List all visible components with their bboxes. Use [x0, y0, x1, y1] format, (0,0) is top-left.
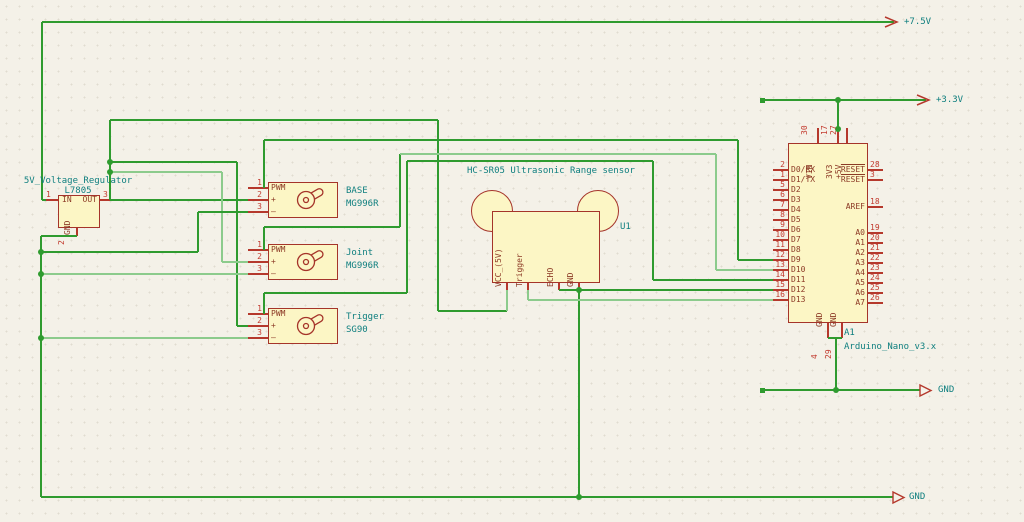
pin-label: –: [271, 207, 276, 216]
wire-segment[interactable]: [716, 269, 773, 271]
pin-number: 6: [770, 190, 785, 199]
junction-dot[interactable]: [38, 249, 44, 255]
pin-number: 30: [800, 125, 809, 135]
pin-number: 24: [870, 273, 880, 282]
pin-label: D3: [791, 195, 801, 204]
pin-label: A6: [815, 288, 865, 297]
wire-segment[interactable]: [237, 325, 248, 327]
pin-stub[interactable]: [248, 211, 268, 213]
pin-stub[interactable]: [248, 337, 268, 339]
pin-stub[interactable]: [868, 179, 883, 181]
pin-number: 17: [820, 125, 829, 135]
pin-number: 19: [870, 223, 880, 232]
wire-segment[interactable]: [407, 160, 653, 162]
wire-segment[interactable]: [737, 140, 739, 260]
wire-segment[interactable]: [715, 154, 717, 270]
arduino-ref[interactable]: A1: [844, 328, 855, 338]
pin-label: D7: [791, 235, 801, 244]
pin-stub[interactable]: [527, 283, 529, 290]
junction-dot[interactable]: [107, 169, 113, 175]
wire-segment[interactable]: [528, 299, 773, 301]
wire-segment[interactable]: [236, 162, 238, 326]
pin-label: D4: [791, 205, 801, 214]
pin-number: 21: [870, 243, 880, 252]
pin-label: PWM: [271, 309, 285, 318]
pin-label: A3: [815, 258, 865, 267]
wire-segment[interactable]: [835, 338, 837, 390]
pin-number: 12: [770, 250, 785, 259]
pin-label: PWM: [271, 245, 285, 254]
wire-segment[interactable]: [41, 337, 248, 339]
pin-label: D8: [791, 245, 801, 254]
pin-number: 1: [250, 178, 262, 187]
wire-segment[interactable]: [264, 226, 400, 228]
pin-label: GND: [566, 273, 575, 287]
pin-number: 3: [250, 202, 262, 211]
pin-number: 28: [870, 160, 880, 169]
pin-number: 2: [250, 252, 262, 261]
pin-number: 3: [250, 328, 262, 337]
regulator-pin-out-label: OUT: [75, 195, 97, 204]
junction-dot[interactable]: [576, 287, 582, 293]
wire-segment[interactable]: [578, 290, 580, 497]
pin-label: D11: [791, 275, 805, 284]
pin-number: 20: [870, 233, 880, 242]
regulator-pin-in-number: 1: [46, 190, 51, 199]
wire-segment[interactable]: [437, 120, 439, 311]
wire-segment[interactable]: [41, 235, 77, 237]
pin-number: 15: [770, 280, 785, 289]
junction-dot[interactable]: [833, 387, 839, 393]
pin-number: 10: [770, 230, 785, 239]
power-arrow-3v3-icon[interactable]: [916, 94, 932, 106]
pin-stub[interactable]: [248, 325, 268, 327]
wire-segment[interactable]: [41, 251, 198, 253]
pin-label: 3V3: [825, 165, 834, 179]
pin-number: 11: [770, 240, 785, 249]
wire-segment[interactable]: [110, 171, 222, 173]
pin-number: 1: [250, 304, 262, 313]
pin-stub[interactable]: [248, 273, 268, 275]
pin-number: 8: [770, 210, 785, 219]
sensor-title[interactable]: HC-SR05 Ultrasonic Range sensor: [467, 166, 635, 176]
pin-number: 13: [770, 260, 785, 269]
pin-number: 1: [770, 170, 785, 179]
regulator-title[interactable]: 5V_Voltage_Regulator: [18, 176, 138, 186]
wire-segment[interactable]: [263, 293, 265, 314]
wire-segment[interactable]: [110, 199, 248, 201]
wire-segment[interactable]: [42, 21, 894, 23]
pin-label: Trigger: [515, 253, 524, 287]
pin-label: ECHO: [546, 268, 555, 287]
pin-stub[interactable]: [841, 323, 843, 338]
pin-number: 2: [250, 316, 262, 325]
power-label-gnd-right[interactable]: GND: [938, 385, 954, 395]
wire-end-square: [760, 388, 765, 393]
wire-segment[interactable]: [400, 153, 716, 155]
pin-label: D6: [791, 225, 801, 234]
pin-label: A0: [815, 228, 865, 237]
pin-stub[interactable]: [248, 313, 268, 315]
pin-number: 2: [250, 190, 262, 199]
pin-label: A5: [815, 278, 865, 287]
pin-label: GND: [829, 313, 838, 327]
servo-base-model[interactable]: MG996R: [346, 199, 379, 209]
pin-label: –: [271, 269, 276, 278]
pin-number: 9: [770, 220, 785, 229]
sensor-ref[interactable]: U1: [620, 222, 631, 232]
pin-label: D12: [791, 285, 805, 294]
wire-segment[interactable]: [762, 389, 920, 391]
wire-segment[interactable]: [263, 227, 265, 250]
pin-number: 16: [770, 290, 785, 299]
servo-trigger-model[interactable]: SG90: [346, 325, 368, 335]
pin-label: GND: [815, 313, 824, 327]
pin-stub[interactable]: [817, 128, 819, 143]
wire-segment[interactable]: [198, 211, 248, 213]
wire-segment[interactable]: [42, 199, 46, 201]
pin-label: D9: [791, 255, 801, 264]
pin-label: D10: [791, 265, 805, 274]
pin-stub[interactable]: [773, 299, 788, 301]
wire-segment[interactable]: [222, 261, 248, 263]
pin-label: A7: [815, 298, 865, 307]
pin-stub[interactable]: [248, 199, 268, 201]
wire-segment[interactable]: [828, 337, 842, 339]
pin-number: 3: [250, 264, 262, 273]
pin-stub[interactable]: [248, 249, 268, 251]
pin-label: A2: [815, 248, 865, 257]
wire-segment[interactable]: [263, 140, 265, 188]
pin-label: +: [271, 195, 276, 204]
pin-number: 7: [770, 200, 785, 209]
servo-horn-icon: [296, 249, 330, 277]
wire-segment[interactable]: [110, 119, 438, 121]
regulator-pin-gnd-number: 2: [57, 240, 66, 245]
pin-number: 14: [770, 270, 785, 279]
servo-horn-icon: [296, 187, 330, 215]
pin-label: A1: [815, 238, 865, 247]
pin-number: 26: [870, 293, 880, 302]
wire-segment[interactable]: [406, 161, 408, 293]
pin-label: A4: [815, 268, 865, 277]
regulator-pin-gnd-label: GND: [63, 221, 72, 235]
junction-dot[interactable]: [576, 494, 582, 500]
arduino-value[interactable]: Arduino_Nano_v3.x: [844, 342, 936, 352]
wire-segment[interactable]: [559, 289, 773, 291]
wire-segment[interactable]: [652, 161, 654, 280]
junction-dot[interactable]: [107, 159, 113, 165]
pin-number: 18: [870, 197, 880, 206]
pin-number: 4: [810, 354, 819, 359]
pin-label: VCC_(5V): [494, 248, 503, 287]
power-arrow-7v5-icon[interactable]: [884, 16, 900, 28]
pin-stub[interactable]: [46, 199, 58, 201]
pin-stub[interactable]: [506, 283, 508, 290]
regulator-pin-in-label: IN: [62, 195, 72, 204]
pin-number: 29: [824, 349, 833, 359]
junction-dot[interactable]: [835, 97, 841, 103]
wire-segment[interactable]: [41, 496, 893, 498]
pin-number: 1: [250, 240, 262, 249]
servo-trigger-ref[interactable]: Trigger: [346, 312, 384, 322]
wire-segment[interactable]: [264, 139, 738, 141]
gnd-arrow-right-icon[interactable]: [919, 384, 933, 397]
pin-label: +: [271, 321, 276, 330]
pin-number: 25: [870, 283, 880, 292]
wire-segment[interactable]: [41, 22, 43, 200]
pin-stub[interactable]: [846, 128, 848, 143]
regulator-pin-out-number: 3: [103, 190, 108, 199]
wire-segment[interactable]: [653, 279, 773, 281]
wire-segment[interactable]: [738, 259, 773, 261]
gnd-arrow-bottom-icon[interactable]: [892, 491, 906, 504]
wire-segment[interactable]: [110, 161, 237, 163]
wire-segment[interactable]: [41, 273, 248, 275]
pin-label: D13: [791, 295, 805, 304]
pin-number: 23: [870, 263, 880, 272]
wire-segment[interactable]: [221, 172, 223, 262]
servo-joint-model[interactable]: MG996R: [346, 261, 379, 271]
servo-horn-icon: [296, 313, 330, 341]
pin-label: –: [271, 333, 276, 342]
pin-label: +: [271, 257, 276, 266]
pin-number: 2: [770, 160, 785, 169]
pin-number: 27: [829, 125, 838, 135]
wire-segment[interactable]: [264, 292, 407, 294]
schematic-canvas: +7.5V +3.3V GND GND 5V_Voltage_Regulator…: [0, 0, 1024, 522]
junction-dot[interactable]: [38, 335, 44, 341]
wire-segment[interactable]: [762, 99, 926, 101]
pin-stub[interactable]: [248, 187, 268, 189]
pin-number: 5: [770, 180, 785, 189]
pin-label: PWM: [271, 183, 285, 192]
pin-label: VIN: [805, 165, 814, 179]
pin-stub[interactable]: [868, 206, 883, 208]
pin-label: D2: [791, 185, 801, 194]
wire-segment[interactable]: [399, 154, 401, 227]
power-label-gnd-bottom[interactable]: GND: [909, 492, 925, 502]
servo-base-ref[interactable]: BASE: [346, 186, 368, 196]
pin-number: 22: [870, 253, 880, 262]
power-label-7v5[interactable]: +7.5V: [904, 17, 931, 27]
pin-label: AREF: [815, 202, 865, 211]
pin-stub[interactable]: [868, 302, 883, 304]
pin-label: +5V: [834, 165, 843, 179]
pin-stub[interactable]: [248, 261, 268, 263]
wire-end-square: [760, 98, 765, 103]
wire-segment[interactable]: [438, 310, 507, 312]
servo-joint-ref[interactable]: Joint: [346, 248, 373, 258]
wire-segment[interactable]: [506, 290, 508, 311]
pin-number: 3: [870, 170, 875, 179]
junction-dot[interactable]: [38, 271, 44, 277]
pin-label: D5: [791, 215, 801, 224]
power-label-3v3[interactable]: +3.3V: [936, 95, 963, 105]
wire-segment[interactable]: [197, 212, 199, 252]
